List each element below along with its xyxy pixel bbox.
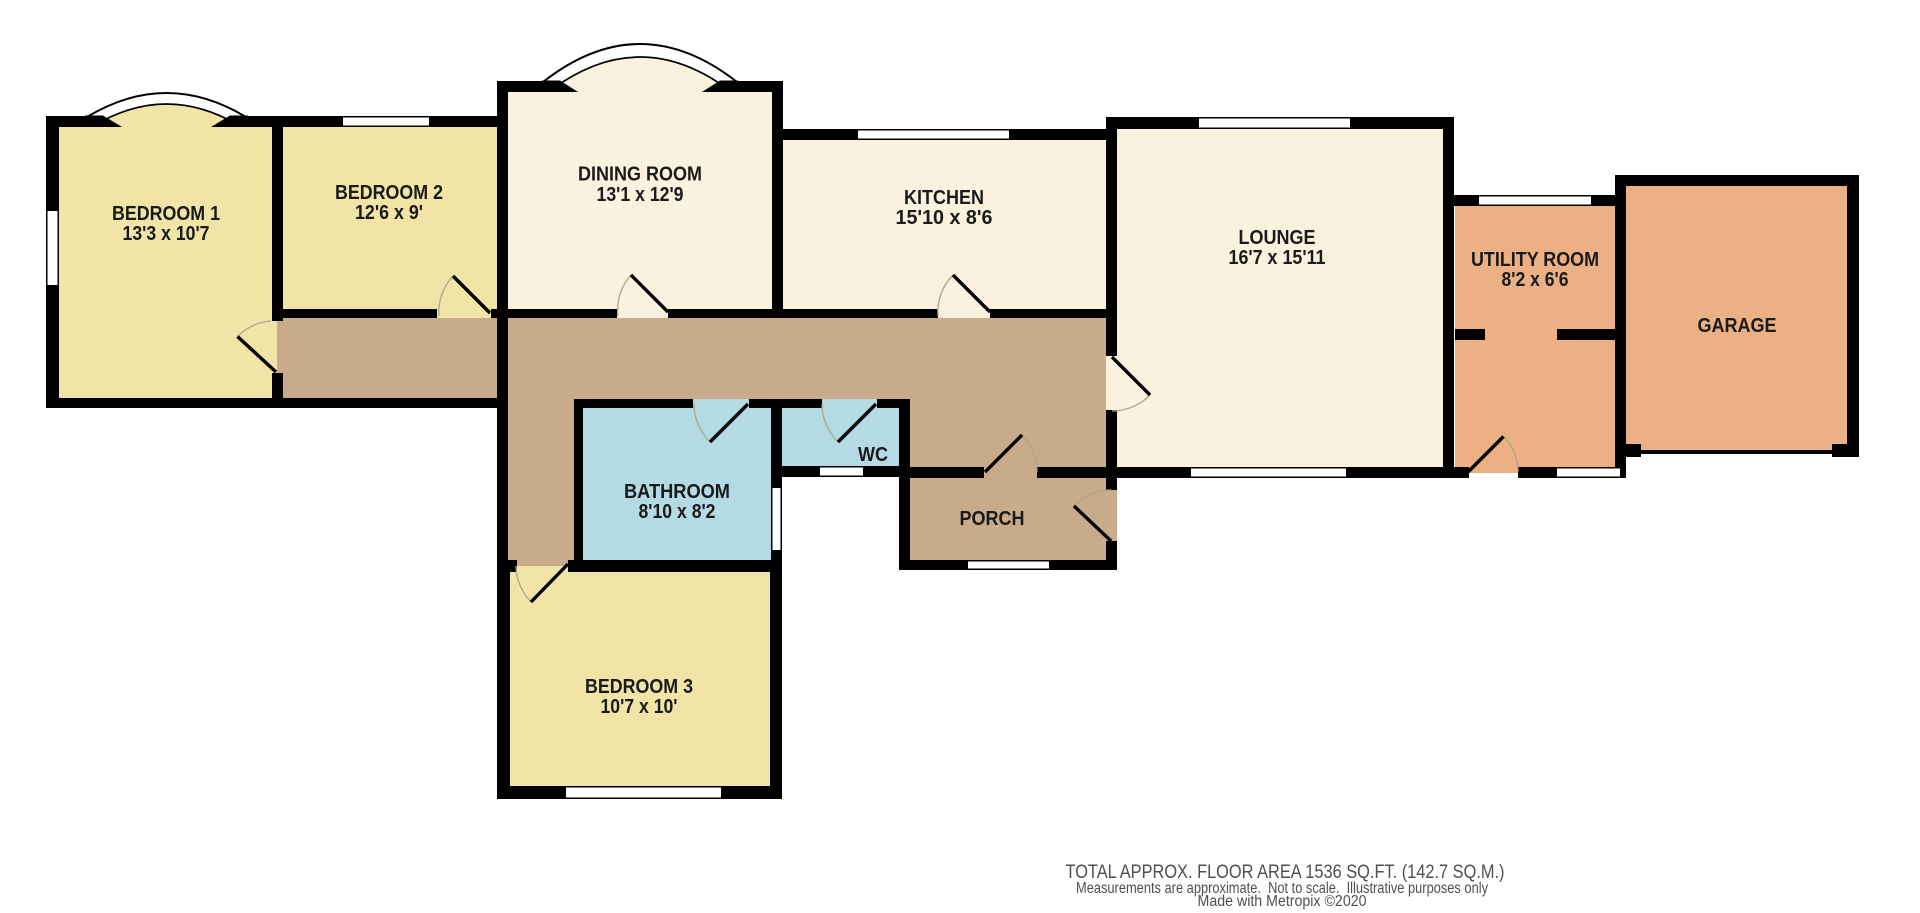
svg-text:WC: WC — [858, 444, 888, 466]
svg-text:13'1 x 12'9: 13'1 x 12'9 — [597, 184, 684, 206]
svg-text:DINING ROOM: DINING ROOM — [578, 164, 702, 186]
svg-text:16'7 x 15'11: 16'7 x 15'11 — [1229, 247, 1326, 269]
svg-text:BATHROOM: BATHROOM — [624, 481, 730, 503]
svg-text:UTILITY ROOM: UTILITY ROOM — [1471, 249, 1599, 271]
svg-text:KITCHEN: KITCHEN — [904, 187, 984, 209]
svg-text:PORCH: PORCH — [960, 508, 1025, 530]
svg-text:Made with Metropix ©2020: Made with Metropix ©2020 — [1198, 893, 1367, 910]
svg-text:GARAGE: GARAGE — [1698, 315, 1777, 337]
svg-text:BEDROOM 1: BEDROOM 1 — [112, 203, 220, 225]
svg-text:15'10 x 8'6: 15'10 x 8'6 — [896, 207, 993, 229]
svg-text:BEDROOM 3: BEDROOM 3 — [585, 676, 693, 698]
svg-text:10'7 x 10': 10'7 x 10' — [601, 696, 678, 718]
svg-text:BEDROOM 2: BEDROOM 2 — [335, 182, 443, 204]
svg-text:12'6 x 9': 12'6 x 9' — [355, 202, 423, 224]
svg-text:8'10 x 8'2: 8'10 x 8'2 — [639, 501, 716, 523]
svg-text:8'2 x 6'6: 8'2 x 6'6 — [1502, 269, 1569, 291]
svg-text:LOUNGE: LOUNGE — [1239, 227, 1316, 249]
svg-text:13'3 x 10'7: 13'3 x 10'7 — [123, 223, 210, 245]
